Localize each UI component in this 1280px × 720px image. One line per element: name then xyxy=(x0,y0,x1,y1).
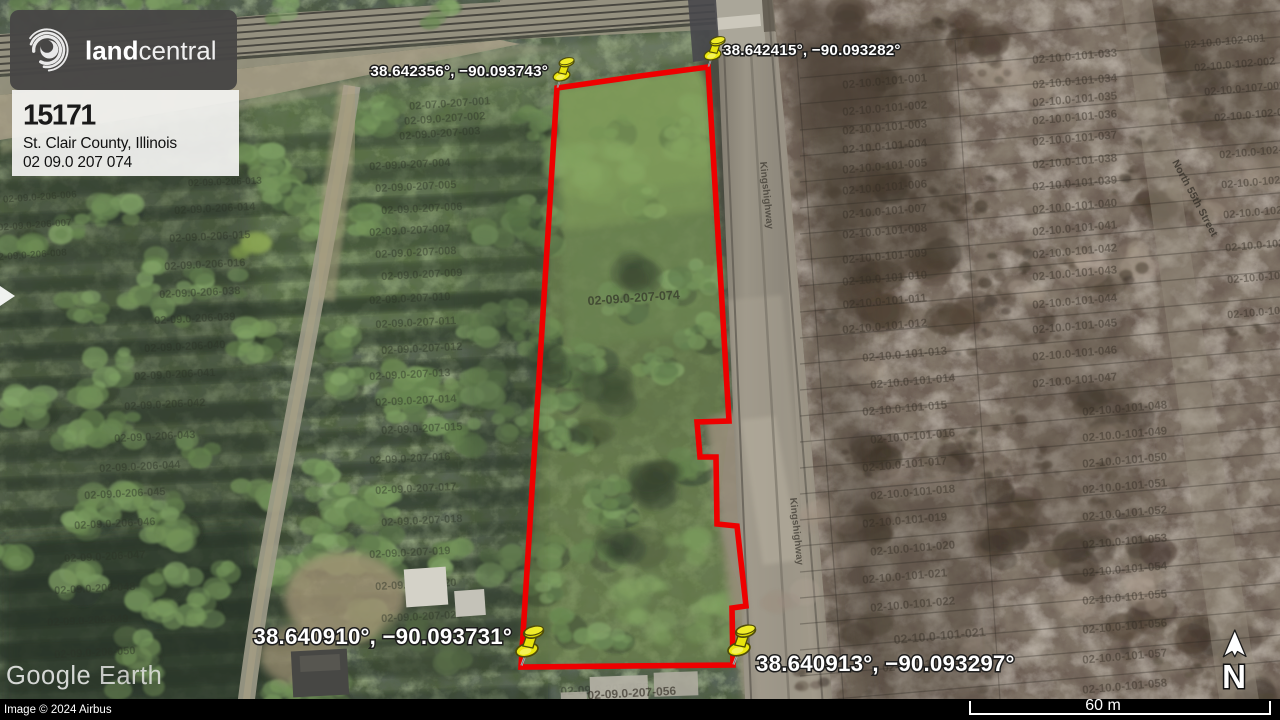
svg-text:38.642356°, −90.093743°: 38.642356°, −90.093743° xyxy=(370,63,548,80)
svg-text:15171: 15171 xyxy=(23,100,96,132)
svg-text:38.640913°, −90.093297°: 38.640913°, −90.093297° xyxy=(756,651,1015,676)
svg-text:02 09.0 207 074: 02 09.0 207 074 xyxy=(23,154,133,171)
svg-text:N: N xyxy=(1222,658,1246,695)
svg-text:Image © 2024 Airbus: Image © 2024 Airbus xyxy=(4,704,112,716)
svg-text:60 m: 60 m xyxy=(1085,697,1121,714)
svg-text:Google Earth: Google Earth xyxy=(6,662,162,690)
svg-text:38.642415°, −90.093282°: 38.642415°, −90.093282° xyxy=(723,42,901,59)
svg-text:landcentral: landcentral xyxy=(85,36,217,66)
svg-text:38.640910°, −90.093731°: 38.640910°, −90.093731° xyxy=(253,624,512,649)
svg-text:St. Clair County, Illinois: St. Clair County, Illinois xyxy=(23,135,177,152)
